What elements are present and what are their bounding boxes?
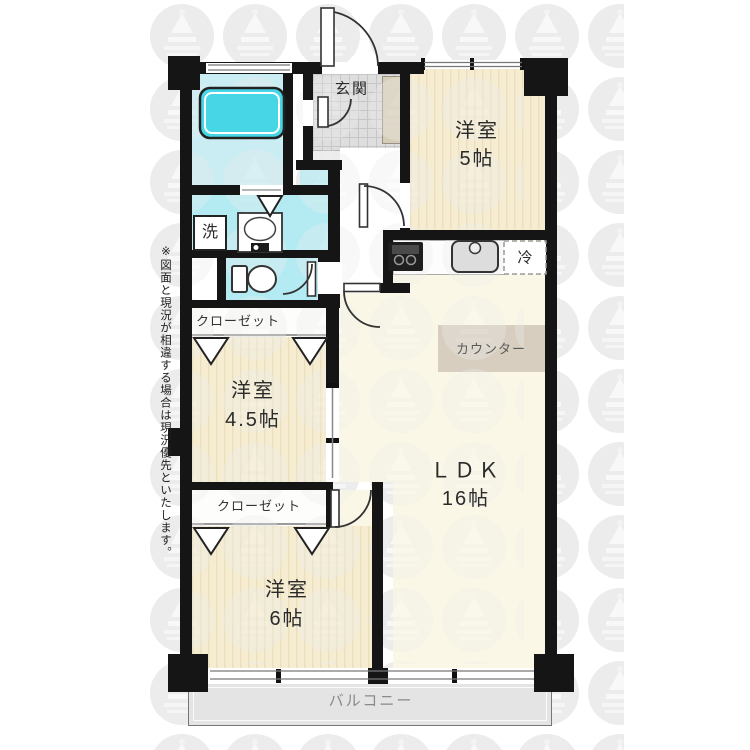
pillar-top-left xyxy=(168,56,200,90)
toilet-side-floor xyxy=(192,258,217,304)
sliding-door-tick xyxy=(326,438,339,443)
entrance-door-gap xyxy=(303,100,313,126)
pillar-top-right xyxy=(524,58,568,96)
wall-closet-upper-top xyxy=(192,300,340,308)
room6-door-pocket xyxy=(333,490,372,527)
closet-upper-label: クローゼット xyxy=(196,315,280,328)
window-tick xyxy=(452,669,457,683)
wall-entrance-left-a xyxy=(303,74,313,100)
wall-bath-bottom-left xyxy=(192,185,240,195)
hall-strip-floor xyxy=(293,74,303,164)
closet-lower-label: クローゼット xyxy=(217,500,301,513)
wall-hall-left-upper xyxy=(328,170,340,262)
wall-entrance-left-b xyxy=(303,126,313,162)
ldk-name: ＬＤＫ xyxy=(430,461,502,482)
washer-label: 洗 xyxy=(202,225,218,241)
fridge-label: 冷 xyxy=(517,251,532,266)
window-tick xyxy=(276,669,281,683)
room5-size: 5帖 xyxy=(459,149,494,169)
wall-room6-right xyxy=(372,482,383,672)
wall-washroom-top-right xyxy=(283,185,332,195)
sliding-door-tick xyxy=(326,383,339,388)
room6-size: 6帖 xyxy=(269,609,304,629)
floorplan-canvas: 玄関 洋室 5帖 洋室 4.5帖 洋室 6帖 ＬＤＫ 16帖 クローゼット クロ… xyxy=(0,0,750,750)
room6-name: 洋室 xyxy=(265,580,309,600)
ldk-size: 16帖 xyxy=(442,489,490,509)
window-tick xyxy=(470,58,474,70)
balcony-label: バルコニー xyxy=(329,694,414,709)
hallway-floor-lower xyxy=(340,230,383,293)
wall-toilet-top xyxy=(192,250,332,258)
entrance-label: 玄関 xyxy=(335,82,369,97)
room45-sliding-door xyxy=(326,385,339,482)
counter-label: カウンター xyxy=(456,343,526,356)
kitchen-counter-top xyxy=(393,240,505,275)
wall-room45-right xyxy=(326,308,339,385)
hallway-floor-upper xyxy=(340,148,400,230)
pillar-bottom-right xyxy=(534,654,574,692)
shoe-cabinet xyxy=(382,76,402,144)
wall-left xyxy=(180,62,192,692)
front-door-gap xyxy=(322,62,378,74)
disclaimer-note: ※図面と現況が相違する場合は現況優先といたします。 xyxy=(157,244,173,559)
wall-bath-right xyxy=(283,74,293,186)
wall-balcony-divider xyxy=(368,668,388,684)
bath-door-gap xyxy=(240,185,283,195)
wall-toilet-right-a xyxy=(318,250,328,262)
wall-right xyxy=(545,62,557,692)
closet-lower-line xyxy=(192,523,326,525)
wall-hall-horizontal xyxy=(296,160,342,170)
ldk-floor xyxy=(393,240,545,670)
wall-toilet-left xyxy=(217,258,226,304)
wall-hall-corner xyxy=(380,283,410,293)
room45-name: 洋室 xyxy=(231,381,275,401)
toilet-door-gap xyxy=(318,262,342,294)
window-tick xyxy=(421,58,425,70)
wall-room45-bottom xyxy=(192,482,333,490)
wall-kitchen-left xyxy=(383,230,393,285)
closet-upper-line xyxy=(192,334,328,336)
window-bath-top xyxy=(206,63,292,73)
wall-room5-left-lower xyxy=(400,228,410,240)
wall-closet-lower-right xyxy=(326,490,336,527)
bathroom-floor xyxy=(192,74,283,185)
pillar-bottom-left xyxy=(168,654,208,692)
room5-name: 洋室 xyxy=(455,121,499,141)
toilet-floor xyxy=(226,258,318,304)
window-tick xyxy=(520,58,524,70)
room5-door-gap xyxy=(400,183,410,228)
wall-room5-left-upper xyxy=(400,62,410,183)
room45-size: 4.5帖 xyxy=(225,410,281,430)
